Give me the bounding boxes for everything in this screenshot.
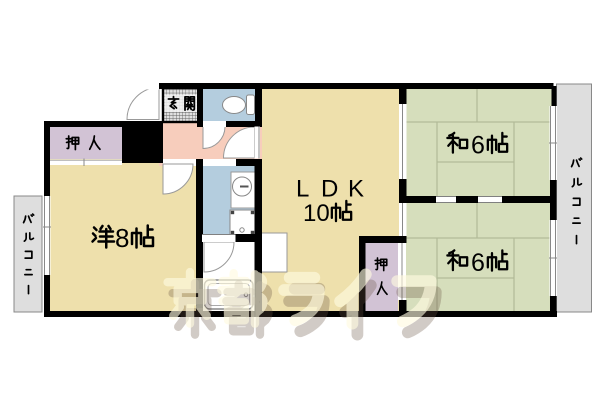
svg-text:D: D xyxy=(321,176,338,203)
svg-text:L: L xyxy=(296,176,309,203)
svg-text:8: 8 xyxy=(115,223,129,253)
svg-text:K: K xyxy=(348,176,364,203)
svg-text:6: 6 xyxy=(471,249,485,277)
svg-text:6: 6 xyxy=(471,132,485,160)
svg-text:10: 10 xyxy=(303,200,330,227)
